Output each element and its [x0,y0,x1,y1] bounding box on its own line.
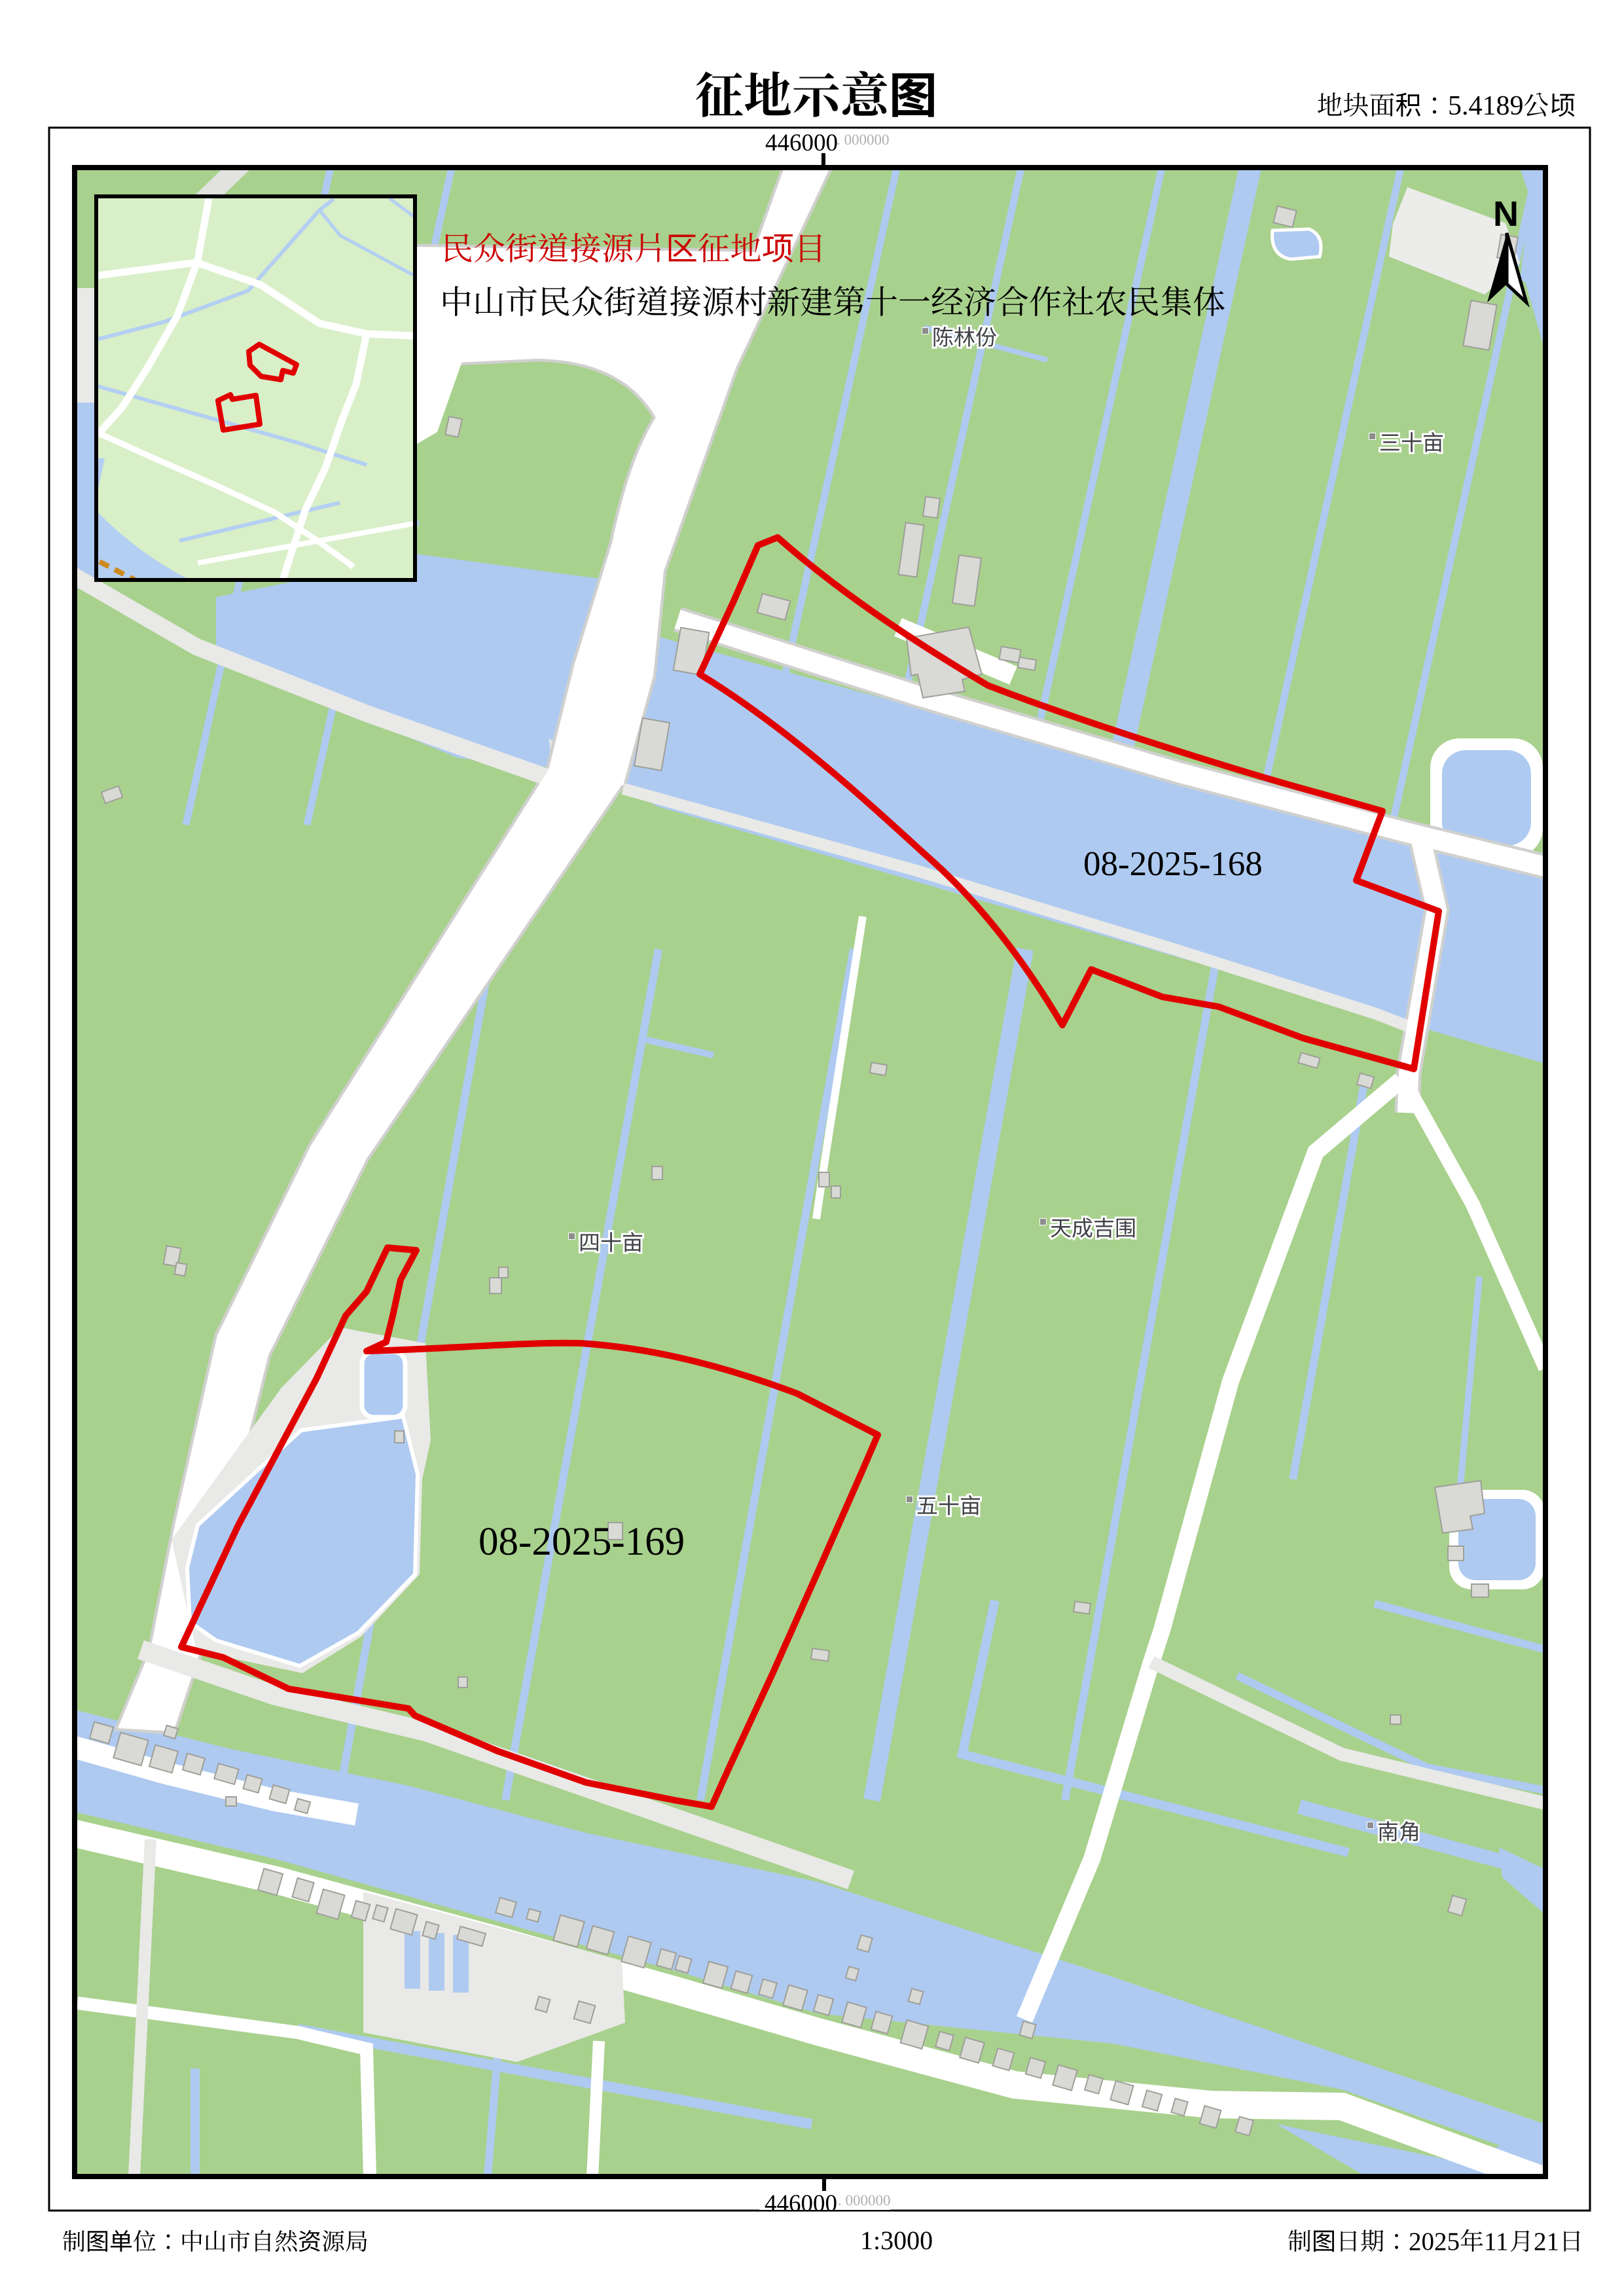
svg-text:N: N [1493,194,1519,234]
svg-text:11: 11 [1484,2228,1509,2256]
svg-text:. 000000: . 000000 [838,2192,891,2209]
svg-text:08-2025-168: 08-2025-168 [1083,845,1263,883]
svg-text:08-2025-169: 08-2025-169 [478,1520,685,1564]
svg-text:2025: 2025 [1409,2228,1460,2256]
svg-text:. 000000: . 000000 [837,132,890,148]
svg-text:5.4189: 5.4189 [1448,91,1524,121]
svg-text:1:3000: 1:3000 [860,2226,933,2255]
svg-text:21: 21 [1534,2228,1559,2256]
svg-text:446000: 446000 [765,130,838,156]
svg-text:446000: 446000 [765,2190,837,2217]
